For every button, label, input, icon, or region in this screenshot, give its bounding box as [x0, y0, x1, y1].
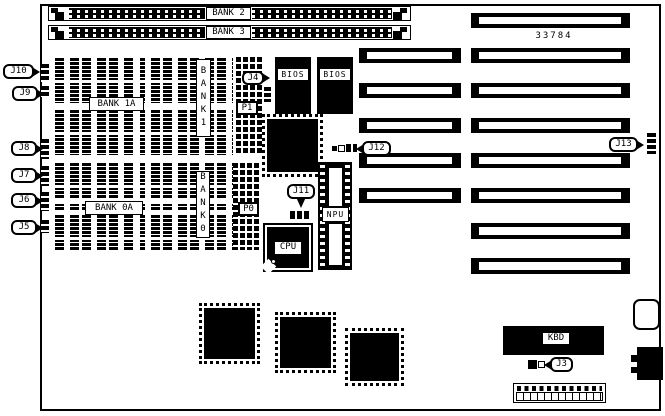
bank0-column-label: BANK0 — [196, 171, 210, 238]
bios2-label: BIOS — [319, 68, 351, 81]
j10-callout: J10 — [3, 64, 34, 79]
npu-slot-lower — [329, 224, 342, 265]
power-pins-top — [517, 386, 602, 391]
isa-slot-long — [471, 118, 630, 133]
j12-connector — [332, 146, 337, 151]
kbd-label: KBD — [542, 332, 570, 345]
npu-slot-upper — [329, 168, 342, 206]
npu-label: NPU — [322, 207, 349, 222]
power-pins-bottom — [516, 392, 603, 401]
simm-clip-icon — [51, 8, 65, 20]
cpu-label: CPU — [274, 241, 302, 255]
edge-connector-bump — [631, 355, 637, 362]
j12-callout: J12 — [362, 141, 391, 156]
j9-callout: J9 — [12, 86, 38, 101]
isa-slot-long — [471, 153, 630, 168]
simm-pin-row — [252, 27, 392, 38]
bank3-label: BANK 3 — [206, 26, 251, 39]
simm-clip-icon — [393, 8, 407, 20]
isa-slot-short — [359, 188, 461, 203]
isa-slot-long — [471, 258, 630, 274]
cpu-pin1-dot-icon — [271, 259, 276, 264]
cpu-chip: CPU — [263, 223, 313, 272]
j12-connector — [338, 145, 345, 152]
bank1a-label: BANK 1A — [89, 97, 144, 111]
p0-label: P0 — [238, 202, 259, 216]
isa-slot-short — [359, 83, 461, 98]
j11-connector — [290, 211, 310, 219]
bank2-label: BANK 2 — [206, 7, 251, 20]
keyboard-din-connector — [633, 299, 660, 330]
qfp-chip — [199, 303, 260, 364]
part-number: 33784 — [532, 30, 576, 41]
j6-callout: J6 — [11, 193, 37, 208]
chipset-qfp-chip — [262, 114, 323, 177]
j13-connector — [647, 133, 656, 154]
qfp-chip — [345, 328, 404, 386]
j13-callout: J13 — [609, 137, 638, 152]
simm-clip-icon — [51, 27, 65, 39]
bios-chip-2 — [317, 57, 353, 114]
bank0a-label: BANK 0A — [85, 201, 143, 215]
npu-socket: NPU — [318, 162, 352, 270]
qfp-chip — [275, 312, 336, 373]
j7-callout: J7 — [11, 168, 37, 183]
isa-slot-long — [471, 83, 630, 98]
j4-callout: J4 — [242, 71, 264, 85]
isa-slot-long — [471, 188, 630, 203]
bank1-column-label: BANK1 — [196, 59, 211, 137]
j3-connector — [528, 360, 537, 369]
isa-slot-long — [471, 48, 630, 63]
isa-slot-long — [471, 13, 630, 28]
j8-callout: J8 — [11, 141, 37, 156]
simm-pin-row — [252, 8, 392, 19]
j5-callout: J5 — [11, 220, 37, 235]
simm-pin-row — [69, 27, 205, 38]
motherboard-diagram: BANK 2 BANK 3 BANK 1A BANK1 J4 P1 BANK 0… — [0, 0, 665, 416]
simm-pin-row — [69, 8, 205, 19]
p1-label: P1 — [236, 101, 258, 115]
isa-slot-short — [359, 118, 461, 133]
j4-connector — [264, 87, 271, 102]
isa-slot-short — [359, 48, 461, 63]
edge-connector-bump — [631, 367, 637, 373]
simm-clip-icon — [393, 27, 407, 39]
j3-callout: J3 — [550, 357, 573, 372]
power-connector — [513, 383, 606, 403]
edge-connector — [637, 347, 663, 380]
bios1-label: BIOS — [277, 68, 309, 81]
j10-connector — [41, 64, 49, 82]
bios-chip-1 — [275, 57, 311, 114]
isa-slot-long — [471, 223, 630, 239]
j11-callout: J11 — [287, 184, 315, 199]
